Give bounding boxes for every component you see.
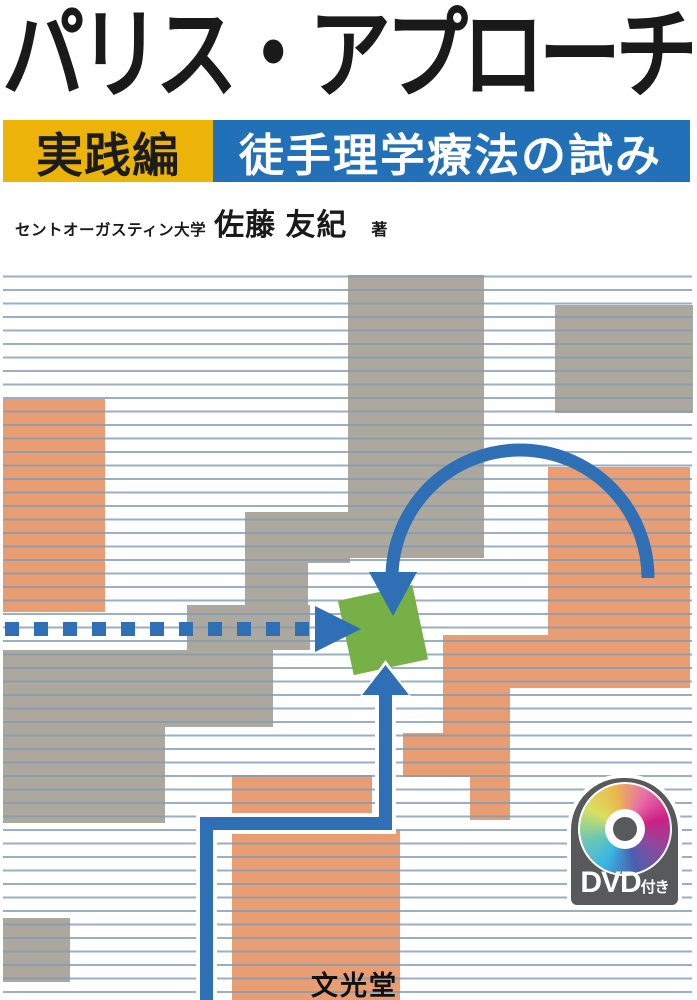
gray-block [3,918,70,982]
subtitle-band: 実践編 徒手理学療法の試み [3,120,690,182]
gray-block [245,563,308,605]
subtitle: 徒手理学療法の試み [213,120,690,182]
salmon-block [403,733,510,777]
gray-block [187,605,310,650]
salmon-block [548,467,690,635]
author-role: 著 [371,216,387,240]
salmon-block [232,775,372,830]
dvd-disc-icon [578,782,672,876]
cover-artwork: DVD付き 文光堂 [3,262,694,1000]
salmon-block [3,399,105,612]
salmon-block [470,777,510,820]
author-name: 佐藤 友紀 [214,200,347,244]
gray-block [3,727,165,823]
dvd-badge: DVD付き [567,774,682,909]
book-cover: パリス・アプローチ 実践編 徒手理学療法の試み セントオーガスティン大学 佐藤 … [0,0,697,1000]
gray-block [555,305,693,413]
green-square [338,585,428,675]
salmon-block [443,688,510,733]
gray-block [245,512,350,563]
author-row: セントオーガスティン大学 佐藤 友紀 著 [15,200,387,236]
subtitle-label: 徒手理学療法の試み [239,120,662,182]
gray-block [3,650,273,727]
book-title: パリス・アプローチ [2,0,581,118]
edition-badge: 実践編 [3,120,213,182]
edition-badge-label: 実践編 [36,117,180,186]
salmon-block [443,635,690,688]
publisher-logo: 文光堂 [311,964,398,1000]
author-affiliation: セントオーガスティン大学 [15,218,206,240]
gray-block [348,275,484,558]
dvd-badge-label: DVD付き [571,866,678,900]
